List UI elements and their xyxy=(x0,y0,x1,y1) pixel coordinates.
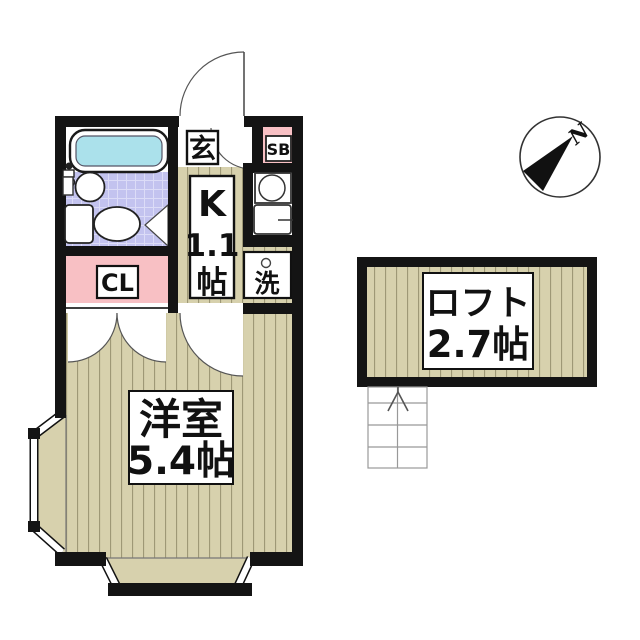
main-room-name: 洋室 xyxy=(139,395,223,444)
wall-kitchen-bottom xyxy=(243,303,303,314)
wall-bay-bottom xyxy=(108,583,252,596)
entrance-door-swing xyxy=(180,52,244,116)
shoe-box-label: SB xyxy=(266,136,291,161)
loft-size: 2.7帖 xyxy=(427,323,530,366)
wall-bottom-left xyxy=(55,552,106,566)
loft-label: ロフト 2.7帖 xyxy=(423,273,533,369)
floor-plan-svg: 玄 SB K 1.1 帖 CL 洗 洋室 5.4帖 ロフト 2 xyxy=(0,0,640,640)
kitchen-counter xyxy=(254,205,293,234)
wall-top-left xyxy=(55,116,179,127)
pane-cap xyxy=(28,428,40,439)
pane-cap xyxy=(28,521,40,532)
main-room-size: 5.4帖 xyxy=(127,439,235,484)
wall-kitchen-fixtures xyxy=(243,163,253,247)
kitchen-label-jo: 帖 xyxy=(197,265,228,301)
main-room-label: 洋室 5.4帖 xyxy=(127,391,235,484)
wall-right xyxy=(292,116,303,566)
bathtub xyxy=(70,130,168,172)
floor-plan-page: 玄 SB K 1.1 帖 CL 洗 洋室 5.4帖 ロフト 2 xyxy=(0,0,640,640)
closet-label-text: CL xyxy=(101,269,134,297)
entrance-label: 玄 xyxy=(187,131,218,165)
compass: N xyxy=(520,117,600,197)
wall-bathroom-right xyxy=(168,116,178,313)
laundry-hookup-icon xyxy=(262,259,271,268)
wall-left xyxy=(55,116,66,418)
laundry-label-text: 洗 xyxy=(254,269,279,298)
kitchen-label-size: 1.1 xyxy=(185,228,240,264)
closet-label: CL xyxy=(97,266,138,298)
kitchen-label-k: K xyxy=(198,184,227,225)
wall-bathroom-closet xyxy=(55,246,178,256)
entrance-label-text: 玄 xyxy=(189,133,216,165)
kitchen-door-gap xyxy=(178,303,243,313)
kitchen-sink xyxy=(255,173,291,203)
loft-ladder xyxy=(368,387,427,468)
loft-name: ロフト xyxy=(425,284,530,324)
shoe-box-label-text: SB xyxy=(267,140,291,159)
laundry-label: 洗 xyxy=(244,252,291,298)
wall-bottom-right xyxy=(250,552,303,566)
kitchen-label: K 1.1 帖 xyxy=(185,176,240,301)
wall-fixtures-bottom xyxy=(243,235,292,247)
toilet xyxy=(65,205,140,243)
